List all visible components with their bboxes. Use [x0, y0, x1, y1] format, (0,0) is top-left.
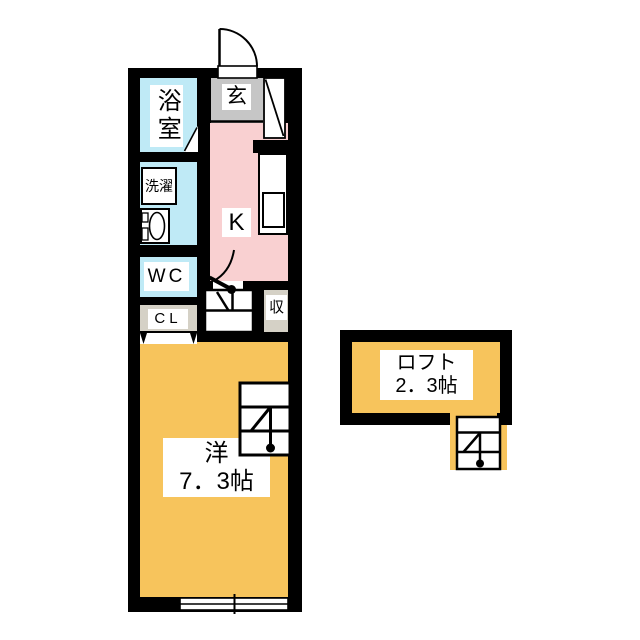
label-main-room: 洋 7．3帖 — [163, 438, 270, 497]
kitchen-counter — [258, 153, 288, 235]
wall-left — [128, 68, 140, 612]
wall-bottom — [128, 597, 302, 612]
loft-ladder-landing — [450, 425, 507, 470]
wall-under-bathroom — [140, 152, 198, 162]
label-wc: WC — [144, 262, 189, 291]
label-bathroom: 浴室 — [150, 85, 183, 147]
floor-plan: 浴室 玄 洗濯 WC CL K 収 洋 7．3帖 ロフト 2．3帖 — [0, 0, 640, 640]
wall-above-counter — [253, 140, 302, 153]
label-kitchen: K — [222, 208, 251, 237]
wall-top — [128, 68, 302, 78]
loft-name: ロフト — [397, 352, 457, 375]
symbol-overlay — [0, 0, 640, 640]
label-laundry: 洗濯 — [141, 167, 177, 205]
label-entrance: 玄 — [222, 84, 251, 110]
label-loft: ロフト 2．3帖 — [380, 350, 473, 400]
entrance-door-arc — [220, 29, 258, 67]
main-room-size: 7．3帖 — [179, 468, 254, 496]
loft-ladder-landing-upper — [450, 413, 497, 425]
label-closet: CL — [148, 309, 188, 329]
washbasin-unit — [140, 208, 170, 244]
loft-size: 2．3帖 — [395, 375, 457, 398]
wall-above-wc — [128, 245, 211, 257]
wall-right — [288, 155, 302, 612]
closet-folding-door — [140, 331, 197, 344]
main-room-name: 洋 — [205, 440, 229, 468]
label-storage: 収 — [266, 295, 287, 320]
